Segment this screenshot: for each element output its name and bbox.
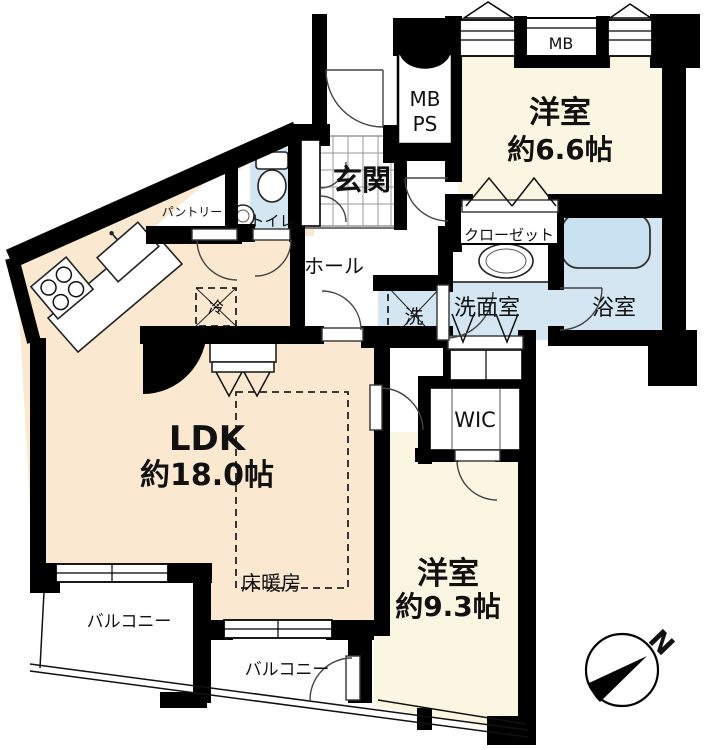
label-refrigerator: 冷 [208,298,224,317]
label-bedroom-66-name: 洋室 [529,95,591,131]
label-pantry: パントリー [162,205,223,219]
label-entrance: 玄関 [333,163,391,197]
window-north-left [460,20,515,56]
label-meter-box: MB [549,34,574,53]
label-washer: 洗 [404,306,423,328]
window-north-right [608,20,652,56]
label-bedroom-93-name: 洋室 [417,556,479,592]
window-ldk-left [56,564,168,582]
label-ldk-area: 約18.0帖 [140,458,274,493]
label-bathroom: 浴室 [592,296,636,321]
label-closet: クローゼット [464,226,554,244]
label-bedroom-66-area: 約6.6帖 [507,133,613,166]
storage-box [450,350,522,380]
bathtub [562,214,650,268]
floorplan-drawing: N 洋室 約6.6帖 LDK 約18.0帖 洋室 約9.3帖 玄関 ホール トイ… [0,0,718,750]
label-bedroom-93-area: 約9.3帖 [395,590,501,623]
label-ldk-name: LDK [169,419,247,459]
toilet-fixture [256,152,288,202]
window-ldk-center [224,620,332,638]
label-toilet: トイレ [249,212,294,230]
label-washroom: 洗面室 [454,296,520,321]
label-shaft-ps: PS [413,112,438,136]
floorplan-page: N 洋室 約6.6帖 LDK 約18.0帖 洋室 約9.3帖 玄関 ホール トイ… [0,0,718,750]
label-wic: WIC [454,408,496,432]
label-balcony-left: バルコニー [87,612,172,632]
label-floor-heating: 床暖房 [241,571,301,595]
label-hall: ホール [304,254,364,278]
label-shaft-mb: MB [410,87,441,111]
label-balcony-center: バルコニー [245,660,330,680]
